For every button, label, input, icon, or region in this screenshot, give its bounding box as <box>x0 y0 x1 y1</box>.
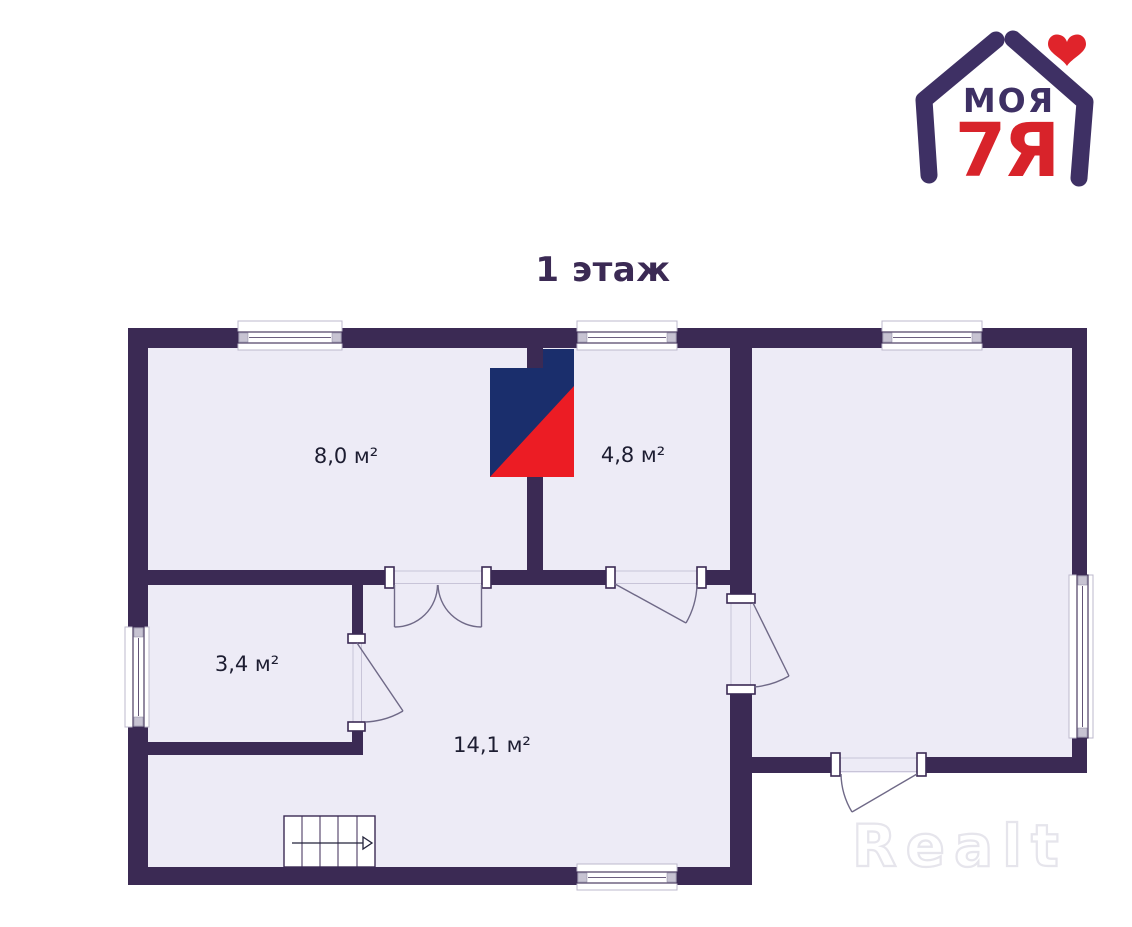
room-label-14-1: 14,1 м² <box>453 733 531 757</box>
door-opening-side-room <box>352 643 363 722</box>
door-opening-double <box>394 570 482 585</box>
logo: МОЯ 7Я <box>924 34 1086 194</box>
window-right-wall <box>1069 575 1093 738</box>
exterior-door-symbol <box>841 774 917 812</box>
window-top-middle <box>577 321 677 350</box>
page-title: 1 этаж <box>535 250 670 290</box>
window-left-wall <box>125 627 149 727</box>
floor-plan-canvas: МОЯ 7Я 1 этаж <box>0 0 1132 927</box>
window-top-left <box>238 321 342 350</box>
room-label-3-4: 3,4 м² <box>215 652 279 676</box>
door-jamb <box>917 753 926 776</box>
door-jamb <box>348 722 365 731</box>
floor-plan-page: МОЯ 7Я 1 этаж <box>0 0 1132 927</box>
heart-icon <box>1048 34 1086 66</box>
door-jamb <box>606 567 615 588</box>
logo-text-7ya: 7Я <box>955 108 1057 194</box>
door-jamb <box>831 753 840 776</box>
door-jamb <box>727 594 755 603</box>
door-jamb <box>482 567 491 588</box>
watermark-realt: Realt <box>852 812 1068 880</box>
staircase-symbol <box>284 816 375 867</box>
door-jamb <box>697 567 706 588</box>
door-opening-hall <box>615 570 697 585</box>
hall-main <box>363 585 730 867</box>
door-opening-right-room <box>730 603 752 685</box>
room-label-4-8: 4,8 м² <box>601 443 665 467</box>
door-jamb <box>348 634 365 643</box>
window-bottom <box>577 864 677 890</box>
door-jamb <box>727 685 755 694</box>
window-top-right <box>882 321 982 350</box>
door-opening-exterior <box>840 757 917 773</box>
floor-plan: 8,0 м² 4,8 м² 3,4 м² 14,1 м² <box>125 321 1093 890</box>
room-label-8-0: 8,0 м² <box>314 444 378 468</box>
stove-symbol <box>490 349 574 477</box>
door-jamb <box>385 567 394 588</box>
room-right <box>752 348 1072 757</box>
